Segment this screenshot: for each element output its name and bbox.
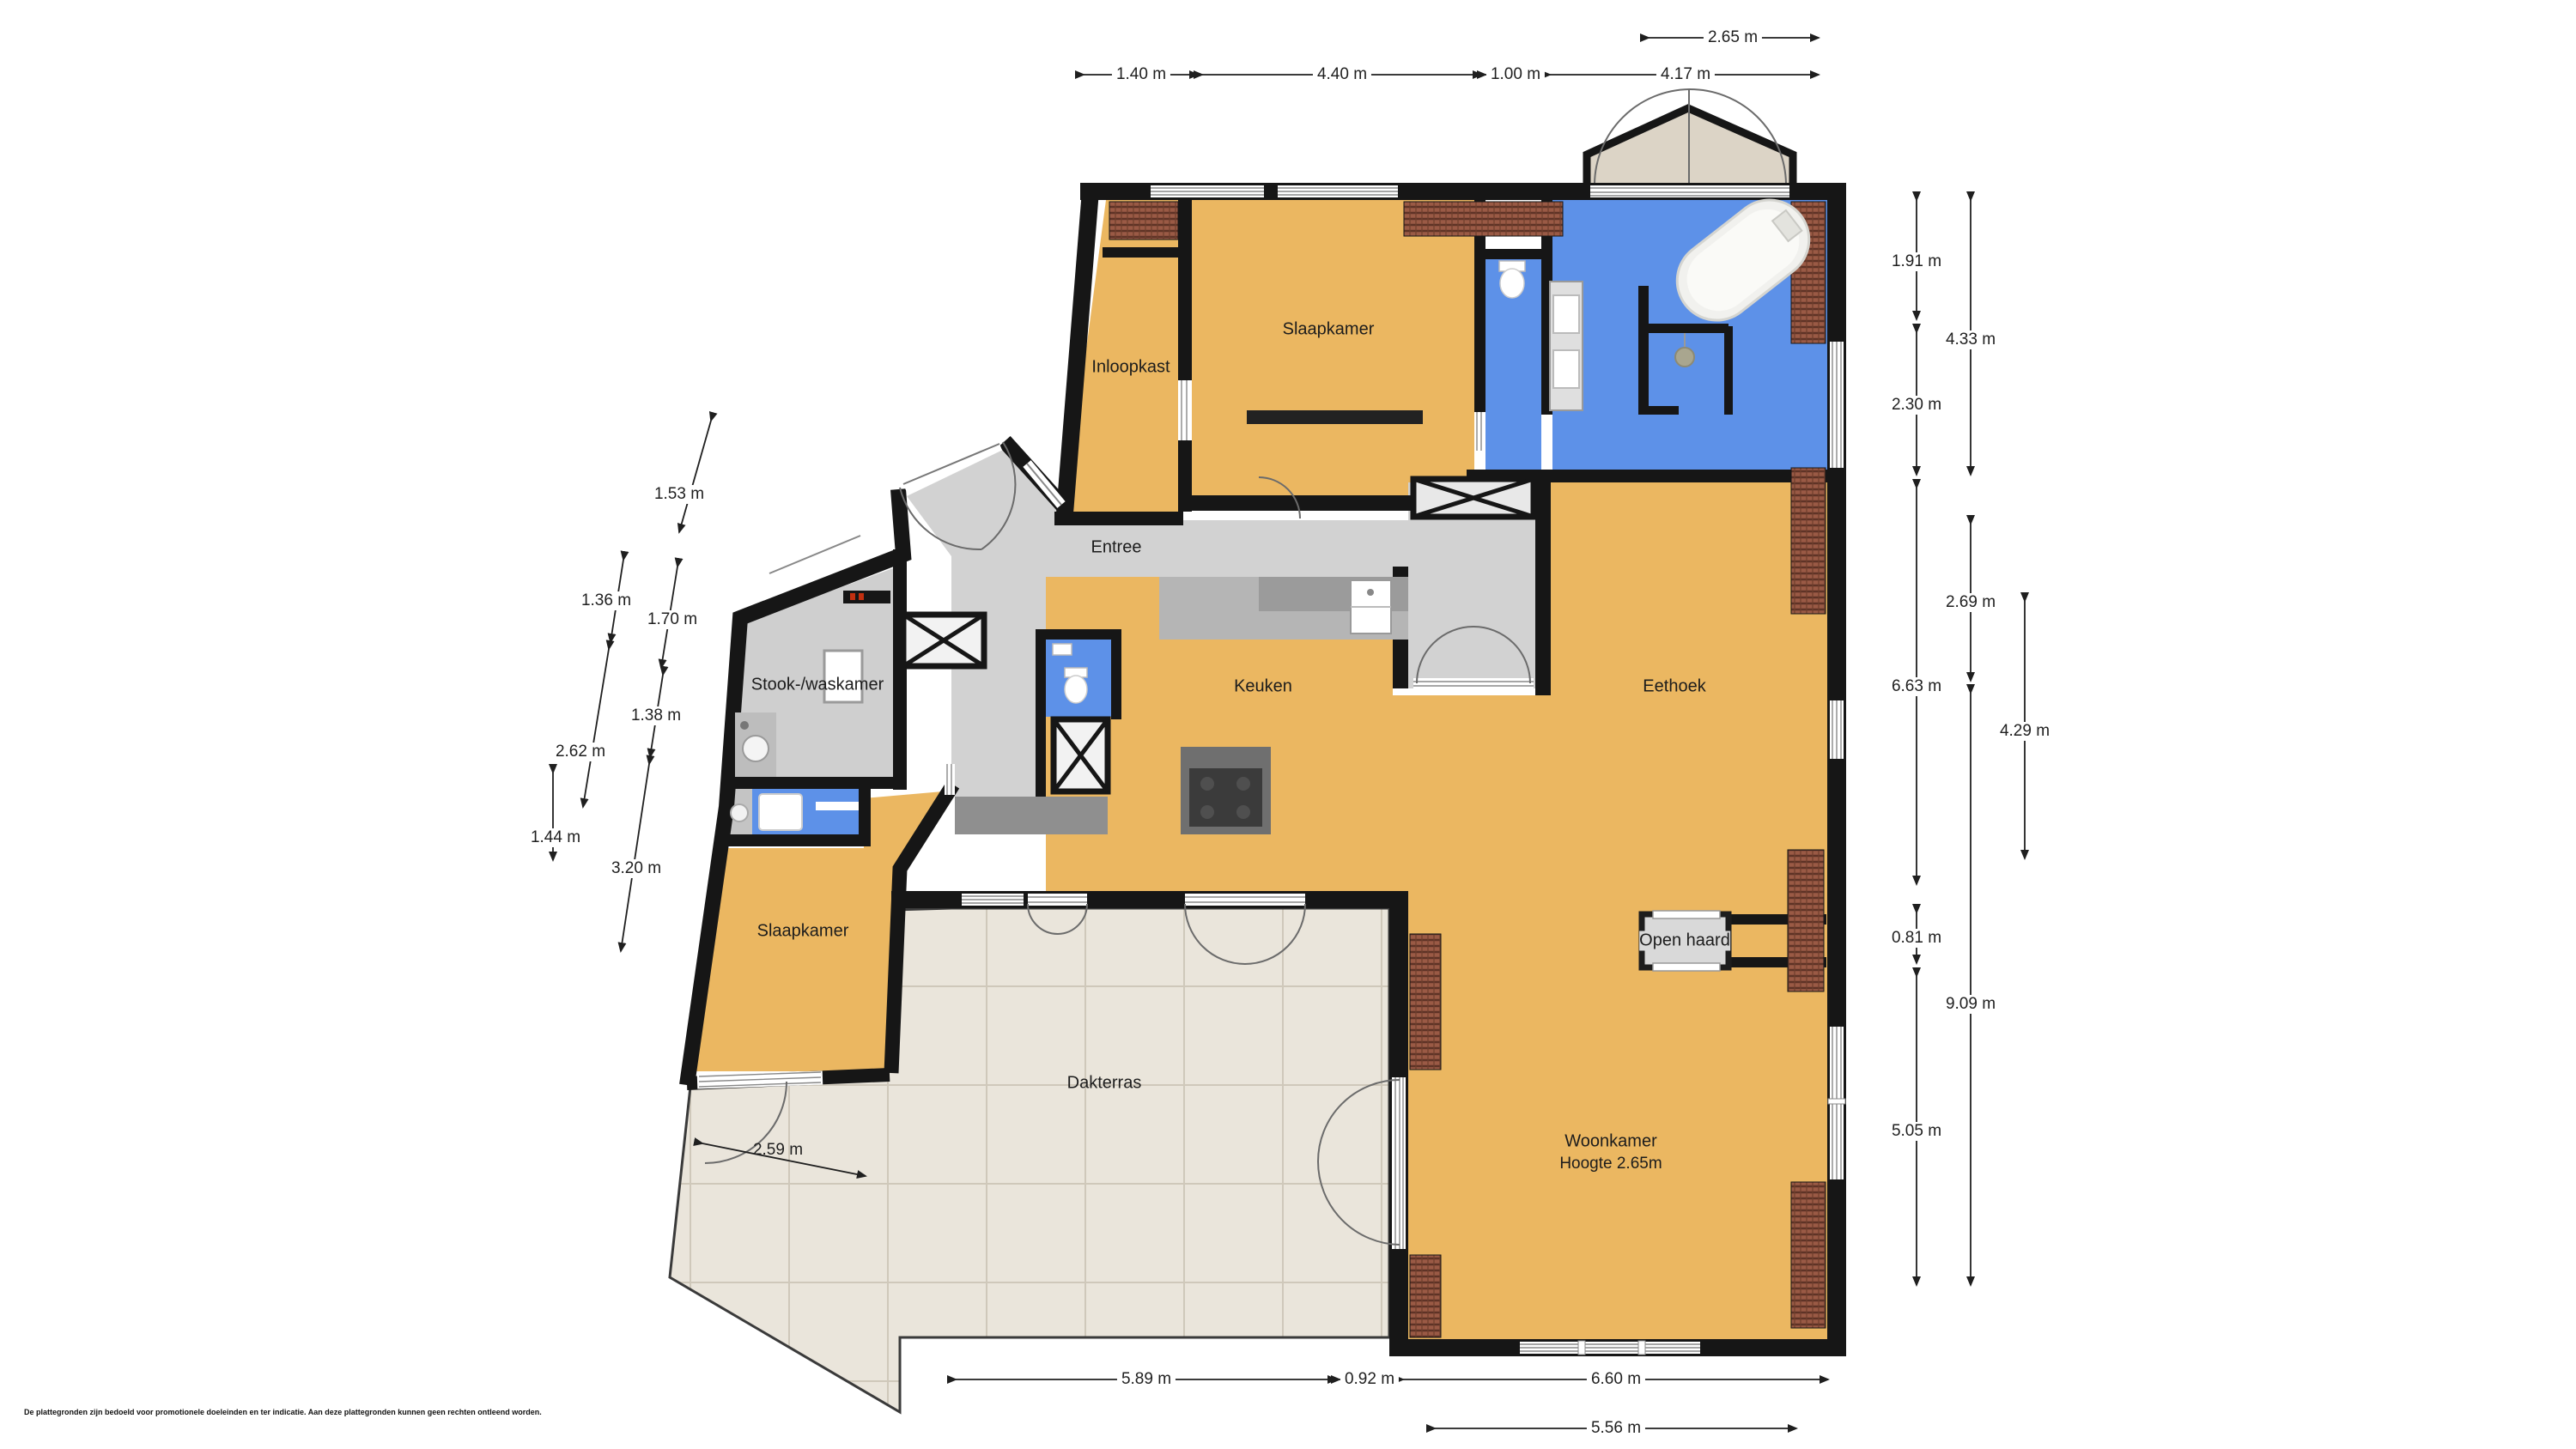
dim-right-9-09: 9.09 m: [1941, 995, 2000, 1014]
dim-bottom-5-56: 5.56 m: [1587, 1419, 1645, 1438]
room-label-slaapkamer-top: Slaapkamer: [1283, 320, 1375, 340]
shower-head-icon: [1675, 348, 1694, 367]
dim-right-2-30: 2.30 m: [1887, 396, 1946, 415]
floorplan-page: Inloopkast Slaapkamer Entree Stook-/wask…: [0, 0, 2576, 1449]
dim-right-4-33: 4.33 m: [1941, 330, 2000, 349]
dim-right-2-69: 2.69 m: [1941, 593, 2000, 612]
disclaimer-text: De plattegronden zijn bedoeld voor promo…: [24, 1408, 542, 1416]
dim-bottom-0-92: 0.92 m: [1340, 1370, 1399, 1389]
dim-top-4-17: 4.17 m: [1656, 65, 1715, 84]
room-label-woonkamer-height: Hoogte 2.65m: [1559, 1155, 1662, 1173]
dim-right-4-29: 4.29 m: [1996, 722, 2054, 741]
boiler-flame-icon: [859, 593, 864, 600]
boiler-flame-icon: [850, 593, 855, 600]
toilet-icon: [1065, 668, 1087, 703]
washing-machine-icon: [743, 736, 769, 761]
dim-left-1-38: 1.38 m: [627, 706, 685, 725]
dim-bottom-5-89: 5.89 m: [1117, 1370, 1176, 1389]
floorplan-canvas: [0, 0, 2576, 1449]
room-label-eethoek: Eethoek: [1643, 677, 1705, 697]
dim-left-2-62: 2.62 m: [551, 743, 610, 761]
room-label-open-haard: Open haard: [1639, 931, 1730, 951]
void-cross-icon: [903, 615, 984, 666]
dim-left-1-70: 1.70 m: [643, 610, 702, 629]
dim-top-1-40: 1.40 m: [1112, 65, 1170, 84]
closet-bar: [1247, 410, 1423, 424]
faucet-icon: [1367, 589, 1374, 596]
dim-bottom-6-60: 6.60 m: [1587, 1370, 1645, 1389]
room-label-dakterras: Dakterras: [1067, 1074, 1142, 1094]
room-label-slaapkamer-bottom: Slaapkamer: [757, 922, 849, 942]
kitchen-counter-south: [955, 797, 1108, 834]
void-cross-icon: [1054, 719, 1108, 791]
dim-right-1-91: 1.91 m: [1887, 252, 1946, 271]
dim-left-1-53: 1.53 m: [650, 485, 708, 504]
room-label-stook-waskamer: Stook-/waskamer: [751, 676, 884, 695]
room-label-keuken: Keuken: [1234, 677, 1292, 697]
toilet-icon: [1499, 261, 1525, 298]
dim-left-3-20: 3.20 m: [607, 859, 665, 878]
dim-right-6-63: 6.63 m: [1887, 677, 1946, 696]
dim-right-0-81: 0.81 m: [1887, 929, 1946, 948]
dim-top-1-00: 1.00 m: [1486, 65, 1545, 84]
keuken-eethoek-opening: [1393, 695, 1408, 891]
room-label-entree: Entree: [1091, 538, 1142, 558]
dim-left-1-36: 1.36 m: [577, 591, 635, 610]
cooktop-icon: [1189, 768, 1262, 827]
washbasin-icon: [1553, 295, 1579, 333]
washbasin-icon: [1053, 644, 1072, 655]
dim-top-4-40: 4.40 m: [1313, 65, 1371, 84]
room-label-woonkamer: Woonkamer: [1564, 1132, 1656, 1152]
dim-right-5-05: 5.05 m: [1887, 1122, 1946, 1141]
room-slaapkamer-top-floor: [1192, 200, 1474, 495]
dim-top-2-65: 2.65 m: [1704, 28, 1762, 47]
void-cross-icon: [1413, 479, 1534, 517]
room-label-inloopkast: Inloopkast: [1091, 358, 1170, 378]
dim-terrace-2-59: 2.59 m: [749, 1141, 807, 1160]
bay-balcony: [1587, 89, 1793, 187]
sink-drain-icon: [740, 721, 749, 730]
washbasin-icon: [1553, 350, 1579, 388]
dim-left-1-44: 1.44 m: [526, 828, 585, 847]
shower-tray-icon: [759, 794, 802, 830]
washbasin-icon: [731, 804, 748, 822]
